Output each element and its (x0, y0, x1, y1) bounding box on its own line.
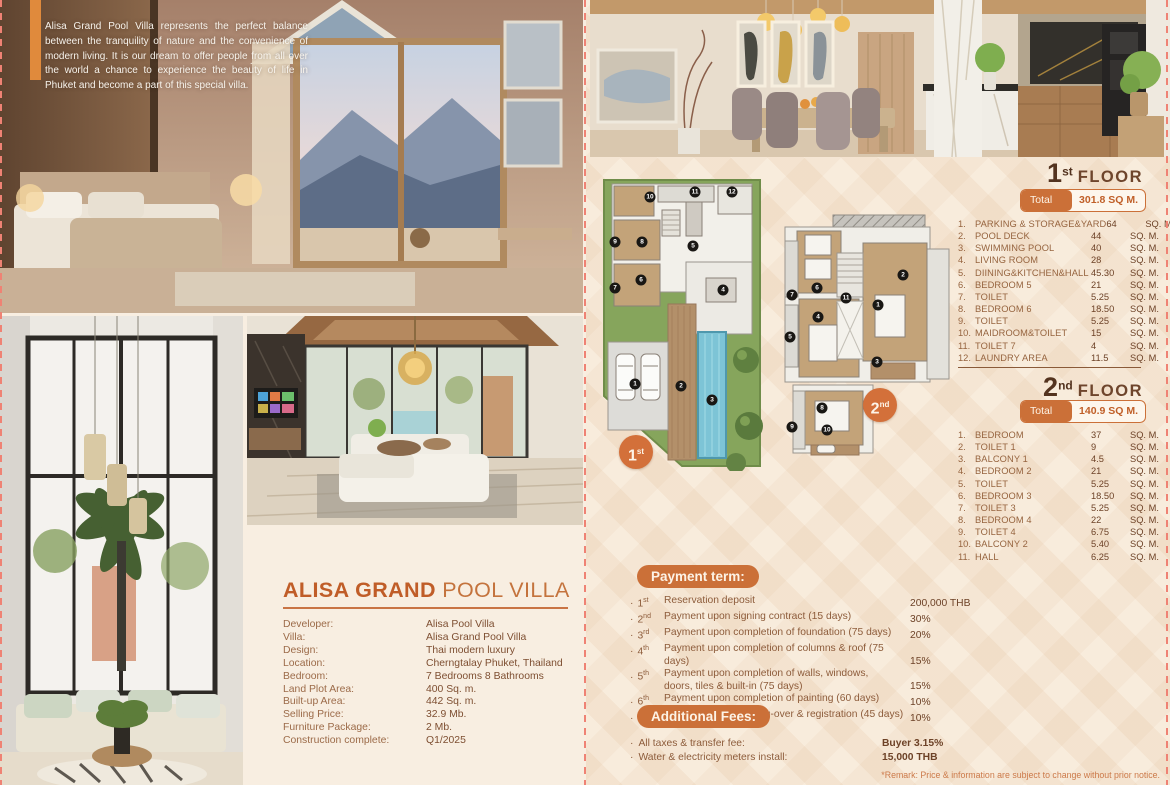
room-unit: SQ. M. (1130, 291, 1164, 303)
room-unit: SQ. M. (1130, 340, 1164, 352)
room-row: 6. BEDROOM 5 21 SQ. M. (958, 279, 1164, 291)
payment-ordinal: 3rd (630, 627, 664, 643)
room-unit: SQ. M. (1130, 538, 1164, 550)
payment-description: Reservation deposit (664, 595, 910, 611)
room-number: 3. (958, 242, 975, 254)
second-floor-heading: 2ndFLOOR (1043, 372, 1143, 403)
room-unit: SQ. M. (1130, 490, 1164, 502)
payment-row: 2nd Payment upon signing contract (15 da… (630, 611, 980, 627)
room-name: PARKING & STORAGE&YARD (975, 218, 1106, 230)
spec-row: Villa: Alisa Grand Pool Villa (283, 632, 573, 645)
room-name: BEDROOM 4 (975, 514, 1091, 526)
payment-description: Payment upon signing contract (15 days) (664, 611, 910, 627)
room-area: 18.50 (1091, 490, 1130, 502)
room-name: BEDROOM 2 (975, 465, 1091, 477)
room-row: 10. MAIDROOM&TOILET 15 SQ. M. (958, 327, 1164, 339)
room-unit: SQ. M. (1130, 254, 1164, 266)
spec-value: 32.9 Mb. (426, 709, 573, 722)
spec-row: Built-up Area: 442 Sq. m. (283, 696, 573, 709)
room-unit: SQ. M. (1130, 352, 1164, 364)
spec-value: Cherngtalay Phuket, Thailand (426, 658, 573, 671)
room-name: HALL (975, 551, 1091, 563)
room-area: 45.30 (1091, 267, 1130, 279)
spec-value: Alisa Grand Pool Villa (426, 632, 573, 645)
room-name: BEDROOM 3 (975, 490, 1091, 502)
total-area-value: 140.9 SQ M. (1072, 401, 1145, 422)
spec-value: Alisa Pool Villa (426, 619, 573, 632)
room-unit: SQ. M. (1130, 429, 1164, 441)
first-floor-room-list: 1. PARKING & STORAGE&YARD 64 SQ. M. 2. P… (958, 218, 1164, 364)
room-number: 7. (958, 502, 975, 514)
floor-ordinal: nd (1058, 379, 1073, 393)
spec-value: Thai modern luxury (426, 645, 573, 658)
spec-label: Developer: (283, 619, 426, 632)
payment-row: 5th Payment upon completion of walls, wi… (630, 668, 980, 693)
living-room-photo (247, 316, 583, 525)
room-unit: SQ. M. (1130, 514, 1164, 526)
room-unit: SQ. M. (1130, 242, 1164, 254)
dining-kitchen-photo (590, 0, 1170, 157)
room-row: 8. BEDROOM 4 22 SQ. M. (958, 514, 1164, 526)
room-row: 12. LAUNDRY AREA 11.5 SQ. M. (958, 352, 1164, 364)
spec-value: 7 Bedrooms 8 Bathrooms (426, 671, 573, 684)
room-area: 28 (1091, 254, 1130, 266)
room-name: TOILET (975, 291, 1091, 303)
payment-value: 10% (910, 697, 980, 710)
room-row: 11. TOILET 7 4 SQ. M. (958, 340, 1164, 352)
plan-room-marker: 11 (690, 187, 701, 198)
room-name: TOILET 4 (975, 526, 1091, 538)
payment-description-line1: Payment upon completion of columns & roo… (664, 643, 884, 667)
payment-row: 3rd Payment upon completion of foundatio… (630, 627, 980, 643)
plan-room-marker: 3 (707, 395, 718, 406)
second-floor-plan: 2nd 1234567891011 (775, 205, 960, 460)
total-area-label: Total area (1021, 190, 1072, 211)
payment-ordinal: 2nd (630, 611, 664, 627)
room-name: LIVING ROOM (975, 254, 1091, 266)
room-number: 1. (958, 218, 975, 230)
room-unit: SQ. M. (1130, 453, 1164, 465)
spec-row: Construction complete: Q1/2025 (283, 735, 573, 748)
fee-description: All taxes & transfer fee: (630, 737, 882, 751)
additional-fees-list: All taxes & transfer fee: Buyer 3.15% Wa… (630, 737, 1050, 764)
plan-room-marker: 1 (630, 379, 641, 390)
room-unit: SQ. M. (1130, 551, 1164, 563)
title-underline (283, 607, 568, 609)
room-number: 2. (958, 230, 975, 242)
payment-value: 15% (910, 681, 980, 694)
room-area: 15 (1091, 327, 1130, 339)
room-name: TOILET (975, 478, 1091, 490)
room-area: 18.50 (1091, 303, 1130, 315)
room-row: 6. BEDROOM 3 18.50 SQ. M. (958, 490, 1164, 502)
plan-room-marker: 5 (785, 332, 796, 343)
spec-value: 400 Sq. m. (426, 684, 573, 697)
floor-ordinal: st (1062, 165, 1073, 179)
first-floor-heading: 1stFLOOR (1047, 158, 1143, 189)
payment-value: 15% (910, 656, 980, 669)
room-number: 12. (958, 352, 975, 364)
spec-row: Design: Thai modern luxury (283, 645, 573, 658)
room-name: TOILET 7 (975, 340, 1091, 352)
room-number: 11. (958, 340, 975, 352)
room-area: 5.25 (1091, 502, 1130, 514)
first-floor-badge: 1st (619, 435, 653, 469)
right-fold-line (1166, 0, 1168, 785)
payment-description: Payment upon completion of foundation (7… (664, 627, 910, 643)
room-name: MAIDROOM&TOILET (975, 327, 1091, 339)
floor-word: FLOOR (1078, 382, 1143, 400)
left-fold-line (0, 0, 2, 785)
room-unit: SQ. M. (1130, 526, 1164, 538)
total-area-label: Total area (1021, 401, 1072, 422)
room-area: 5.25 (1091, 291, 1130, 303)
room-number: 10. (958, 327, 975, 339)
room-area: 37 (1091, 429, 1130, 441)
room-unit: SQ. M. (1130, 230, 1164, 242)
living-room-photo-art (247, 316, 583, 525)
room-unit: SQ. M. (1130, 315, 1164, 327)
second-floor-badge: 2nd (863, 388, 897, 422)
second-floor-room-list: 1. BEDROOM 37 SQ. M. 2. TOILET 1 9 SQ. M… (958, 429, 1164, 563)
spec-value: 2 Mb. (426, 722, 573, 735)
bedroom-photo: Alisa Grand Pool Villa represents the pe… (0, 0, 583, 313)
intro-accent-bar (30, 0, 41, 80)
room-row: 9. TOILET 5.25 SQ. M. (958, 315, 1164, 327)
payment-ordinal: 5th (630, 668, 664, 693)
floor-number: 2 (1043, 372, 1058, 402)
room-row: 9. TOILET 4 6.75 SQ. M. (958, 526, 1164, 538)
badge-ordinal: st (637, 447, 644, 456)
plan-room-marker: 10 (822, 425, 833, 436)
room-name: BALCONY 1 (975, 453, 1091, 465)
payment-description-line1: Payment upon signing contract (15 days) (664, 611, 851, 622)
spec-label: Built-up Area: (283, 696, 426, 709)
fee-value: Buyer 3.15% (882, 737, 1050, 751)
floor-word: FLOOR (1078, 168, 1143, 186)
payment-row: 4th Payment upon completion of columns &… (630, 643, 980, 668)
room-row: 2. POOL DECK 44 SQ. M. (958, 230, 1164, 242)
room-row: 4. BEDROOM 2 21 SQ. M. (958, 465, 1164, 477)
floor-number: 1 (1047, 158, 1062, 188)
spec-value: 442 Sq. m. (426, 696, 573, 709)
remark-note: *Remark: Price & information are subject… (881, 770, 1160, 780)
payment-value: 20% (910, 630, 980, 643)
room-unit: SQ. M. (1130, 465, 1164, 477)
payment-description-line1: Payment upon completion of foundation (7… (664, 627, 891, 638)
spec-label: Bedroom: (283, 671, 426, 684)
room-row: 10. BALCONY 2 5.40 SQ. M. (958, 538, 1164, 550)
room-row: 8. BEDROOM 6 18.50 SQ. M. (958, 303, 1164, 315)
payment-description: Payment upon completion of walls, window… (664, 668, 910, 693)
room-number: 9. (958, 526, 975, 538)
room-row: 2. TOILET 1 9 SQ. M. (958, 441, 1164, 453)
villa-title-bold: ALISA GRAND (283, 578, 436, 602)
payment-ordinal: 1st (630, 595, 664, 611)
plan-room-marker: 7 (610, 283, 621, 294)
room-area: 64 (1106, 218, 1145, 230)
room-number: 5. (958, 478, 975, 490)
fee-value: 15,000 THB (882, 751, 1050, 765)
badge-number: 2 (871, 400, 880, 417)
spec-label: Selling Price: (283, 709, 426, 722)
room-number: 10. (958, 538, 975, 550)
plan-room-marker: 6 (636, 275, 647, 286)
first-floor-plan: 1st 123456789101112 (598, 176, 768, 471)
plan-room-marker: 8 (817, 403, 828, 414)
ordinal-suffix: th (643, 670, 649, 677)
room-row: 1. PARKING & STORAGE&YARD 64 SQ. M. (958, 218, 1164, 230)
badge-number: 1 (628, 447, 637, 464)
room-number: 5. (958, 267, 975, 279)
room-number: 7. (958, 291, 975, 303)
room-name: DIINING&KITCHEN&HALL (975, 267, 1091, 279)
payment-row: 1st Reservation deposit 200,000 THB (630, 595, 980, 611)
room-name: POOL DECK (975, 230, 1091, 242)
room-number: 6. (958, 279, 975, 291)
atrium-photo-art (0, 316, 243, 785)
room-area: 22 (1091, 514, 1130, 526)
spec-label: Location: (283, 658, 426, 671)
payment-description-line2: doors, tiles & built-in (75 days) (664, 681, 803, 692)
room-row: 4. LIVING ROOM 28 SQ. M. (958, 254, 1164, 266)
spec-label: Construction complete: (283, 735, 426, 748)
room-unit: SQ. M. (1130, 279, 1164, 291)
plan-room-marker: 5 (688, 241, 699, 252)
first-floor-total-area: Total area 301.8 SQ M. (1020, 189, 1146, 212)
room-number: 8. (958, 303, 975, 315)
fee-row: Water & electricity meters install: 15,0… (630, 751, 1050, 765)
villa-spec-list: Developer: Alisa Pool Villa Villa: Alisa… (283, 619, 573, 748)
room-unit: SQ. M. (1130, 327, 1164, 339)
second-floor-total-area: Total area 140.9 SQ M. (1020, 400, 1146, 423)
room-area: 6.75 (1091, 526, 1130, 538)
spec-label: Furniture Package: (283, 722, 426, 735)
plan-room-marker: 2 (898, 270, 909, 281)
brochure-sheet: Alisa Grand Pool Villa represents the pe… (0, 0, 1170, 785)
payment-term-header: Payment term: (637, 565, 759, 588)
room-number: 3. (958, 453, 975, 465)
floor-list-divider (958, 367, 1141, 368)
room-row: 5. DIINING&KITCHEN&HALL 45.30 SQ. M. (958, 267, 1164, 279)
room-unit: SQ. M. (1130, 502, 1164, 514)
ordinal-suffix: nd (643, 613, 651, 620)
villa-title-light: POOL VILLA (442, 578, 570, 602)
plan-room-marker: 3 (872, 357, 883, 368)
plan-room-marker: 9 (787, 422, 798, 433)
plan-room-marker: 9 (610, 237, 621, 248)
room-number: 6. (958, 490, 975, 502)
room-area: 5.25 (1091, 315, 1130, 327)
spec-label: Villa: (283, 632, 426, 645)
spec-row: Land Plot Area: 400 Sq. m. (283, 684, 573, 697)
room-name: BEDROOM 5 (975, 279, 1091, 291)
room-name: LAUNDRY AREA (975, 352, 1091, 364)
spec-row: Bedroom: 7 Bedrooms 8 Bathrooms (283, 671, 573, 684)
spec-row: Furniture Package: 2 Mb. (283, 722, 573, 735)
room-row: 1. BEDROOM 37 SQ. M. (958, 429, 1164, 441)
room-name: TOILET 1 (975, 441, 1091, 453)
room-unit: SQ. M. (1130, 478, 1164, 490)
room-name: SWIMMING POOL (975, 242, 1091, 254)
fee-row: All taxes & transfer fee: Buyer 3.15% (630, 737, 1050, 751)
room-area: 21 (1091, 465, 1130, 477)
room-number: 2. (958, 441, 975, 453)
plan-room-marker: 2 (676, 381, 687, 392)
room-number: 4. (958, 254, 975, 266)
room-row: 7. TOILET 5.25 SQ. M. (958, 291, 1164, 303)
spec-row: Developer: Alisa Pool Villa (283, 619, 573, 632)
room-row: 11. HALL 6.25 SQ. M. (958, 551, 1164, 563)
room-name: BEDROOM 6 (975, 303, 1091, 315)
room-number: 9. (958, 315, 975, 327)
total-area-value: 301.8 SQ M. (1072, 190, 1145, 211)
spec-label: Land Plot Area: (283, 684, 426, 697)
room-name: TOILET (975, 315, 1091, 327)
ordinal-suffix: rd (643, 629, 649, 636)
plan-room-marker: 6 (812, 283, 823, 294)
room-row: 3. SWIMMING POOL 40 SQ. M. (958, 242, 1164, 254)
payment-description-line1: Payment upon completion of painting (60 … (664, 693, 879, 704)
room-area: 4.5 (1091, 453, 1130, 465)
plan-room-marker: 4 (813, 312, 824, 323)
payment-description-line1: Payment upon completion of walls, window… (664, 668, 868, 679)
atrium-photo (0, 316, 243, 785)
room-area: 44 (1091, 230, 1130, 242)
room-area: 5.25 (1091, 478, 1130, 490)
plan-room-marker: 4 (718, 285, 729, 296)
room-area: 4 (1091, 340, 1130, 352)
room-row: 5. TOILET 5.25 SQ. M. (958, 478, 1164, 490)
payment-value: 30% (910, 614, 980, 627)
payment-value: 10% (910, 713, 980, 726)
room-name: TOILET 3 (975, 502, 1091, 514)
room-area: 9 (1091, 441, 1130, 453)
ordinal-suffix: th (643, 695, 649, 702)
plan-room-marker: 11 (841, 293, 852, 304)
room-area: 11.5 (1091, 352, 1130, 364)
spec-row: Location: Cherngtalay Phuket, Thailand (283, 658, 573, 671)
intro-paragraph: Alisa Grand Pool Villa represents the pe… (45, 20, 308, 94)
room-name: BALCONY 2 (975, 538, 1091, 550)
plan-room-marker: 8 (637, 237, 648, 248)
additional-fees-header: Additional Fees: (637, 705, 770, 728)
payment-description: Payment upon completion of columns & roo… (664, 643, 910, 668)
spec-value: Q1/2025 (426, 735, 573, 748)
room-unit: SQ. M. (1130, 441, 1164, 453)
payment-ordinal: 4th (630, 643, 664, 668)
ordinal-suffix: th (643, 645, 649, 652)
plan-room-marker: 10 (645, 192, 656, 203)
second-floor-plan-art (775, 205, 960, 460)
dining-kitchen-photo-art (590, 0, 1170, 157)
room-area: 21 (1091, 279, 1130, 291)
center-fold-line (584, 0, 586, 785)
room-unit: SQ. M. (1130, 267, 1164, 279)
fee-description: Water & electricity meters install: (630, 751, 882, 765)
room-unit: SQ. M. (1130, 303, 1164, 315)
payment-value: 200,000 THB (910, 598, 980, 611)
room-row: 3. BALCONY 1 4.5 SQ. M. (958, 453, 1164, 465)
room-number: 4. (958, 465, 975, 477)
first-floor-plan-art (598, 176, 768, 471)
spec-row: Selling Price: 32.9 Mb. (283, 709, 573, 722)
badge-ordinal: nd (880, 400, 890, 409)
payment-description-line1: Reservation deposit (664, 595, 755, 606)
room-number: 8. (958, 514, 975, 526)
plan-room-marker: 12 (727, 187, 738, 198)
room-number: 1. (958, 429, 975, 441)
room-area: 6.25 (1091, 551, 1130, 563)
room-row: 7. TOILET 3 5.25 SQ. M. (958, 502, 1164, 514)
room-number: 11. (958, 551, 975, 563)
plan-room-marker: 1 (873, 300, 884, 311)
ordinal-suffix: st (643, 597, 648, 604)
room-name: BEDROOM (975, 429, 1091, 441)
room-area: 40 (1091, 242, 1130, 254)
plan-room-marker: 7 (787, 290, 798, 301)
villa-title: ALISA GRAND POOL VILLA (283, 578, 570, 603)
spec-label: Design: (283, 645, 426, 658)
room-area: 5.40 (1091, 538, 1130, 550)
